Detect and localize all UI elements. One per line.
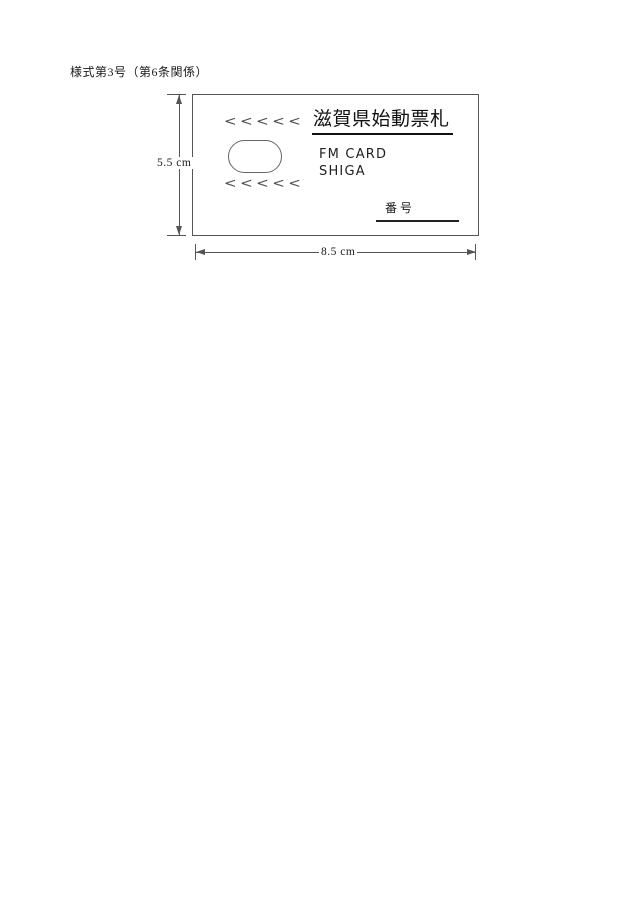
number-field-underline: [376, 220, 459, 222]
card-title-underline: [312, 133, 453, 135]
chevron-row-top: <<<<<: [224, 115, 304, 128]
height-dimension-tick-bottom: [167, 235, 186, 236]
width-dimension-label: 8.5 cm: [319, 246, 357, 258]
form-number-label: 様式第3号（第6条関係）: [70, 63, 208, 80]
specimen-card: <<<<< <<<<< 滋賀県始動票札 FM CARD SHIGA 番号: [192, 94, 479, 236]
arrow-left-icon: [196, 249, 205, 255]
card-text-block: FM CARD SHIGA: [319, 146, 387, 180]
arrow-down-icon: [176, 226, 182, 235]
height-dimension-label: 5.5 cm: [155, 157, 193, 169]
document-page: 様式第3号（第6条関係） <<<<< <<<<< 滋賀県始動票札 FM CARD…: [0, 0, 630, 903]
arrow-up-icon: [176, 95, 182, 104]
stadium-cutout-shape: [228, 140, 282, 173]
arrow-right-icon: [467, 249, 476, 255]
number-field-label: 番号: [385, 199, 415, 216]
card-text-line1: FM CARD: [319, 146, 387, 163]
card-title: 滋賀県始動票札: [313, 104, 450, 131]
card-text-line2: SHIGA: [319, 163, 387, 180]
chevron-row-bottom: <<<<<: [224, 177, 304, 190]
